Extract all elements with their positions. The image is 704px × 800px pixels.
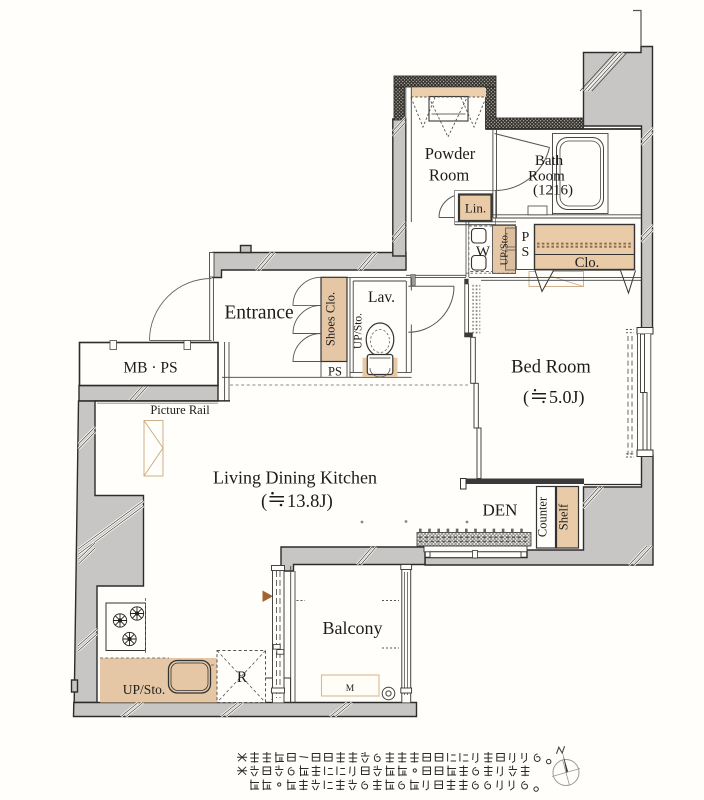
svg-text:Counter: Counter <box>536 496 550 537</box>
svg-text:Shelf: Shelf <box>557 503 571 530</box>
svg-text:Lin.: Lin. <box>465 201 486 216</box>
svg-text:Entrance: Entrance <box>224 303 293 324</box>
svg-text:Shoes Clo.: Shoes Clo. <box>324 292 338 346</box>
svg-text:R: R <box>237 669 248 686</box>
svg-text:UP/Sto.: UP/Sto. <box>500 233 511 266</box>
svg-text:W: W <box>476 244 491 260</box>
svg-text:S: S <box>522 245 530 260</box>
svg-text:UP/Sto.: UP/Sto. <box>123 682 165 697</box>
svg-text:Lav.: Lav. <box>368 289 395 306</box>
svg-text:Picture Rail: Picture Rail <box>150 403 210 417</box>
svg-text:UP/Sto.: UP/Sto. <box>353 313 365 349</box>
svg-text:Room: Room <box>429 166 470 185</box>
svg-text:Living Dining Kitchen: Living Dining Kitchen <box>213 468 377 488</box>
svg-text:M: M <box>346 684 355 694</box>
svg-text:MB · PS: MB · PS <box>123 360 177 377</box>
svg-text:Bed Room: Bed Room <box>511 358 591 378</box>
svg-text:(1216): (1216) <box>533 183 573 199</box>
svg-text:Powder: Powder <box>425 144 476 163</box>
svg-text:Balcony: Balcony <box>323 618 383 638</box>
svg-text:PS: PS <box>328 365 342 379</box>
svg-text:Bath: Bath <box>535 153 564 169</box>
svg-text:Clo.: Clo. <box>575 255 600 271</box>
svg-text:DEN: DEN <box>483 501 518 520</box>
svg-text:P: P <box>522 230 530 245</box>
